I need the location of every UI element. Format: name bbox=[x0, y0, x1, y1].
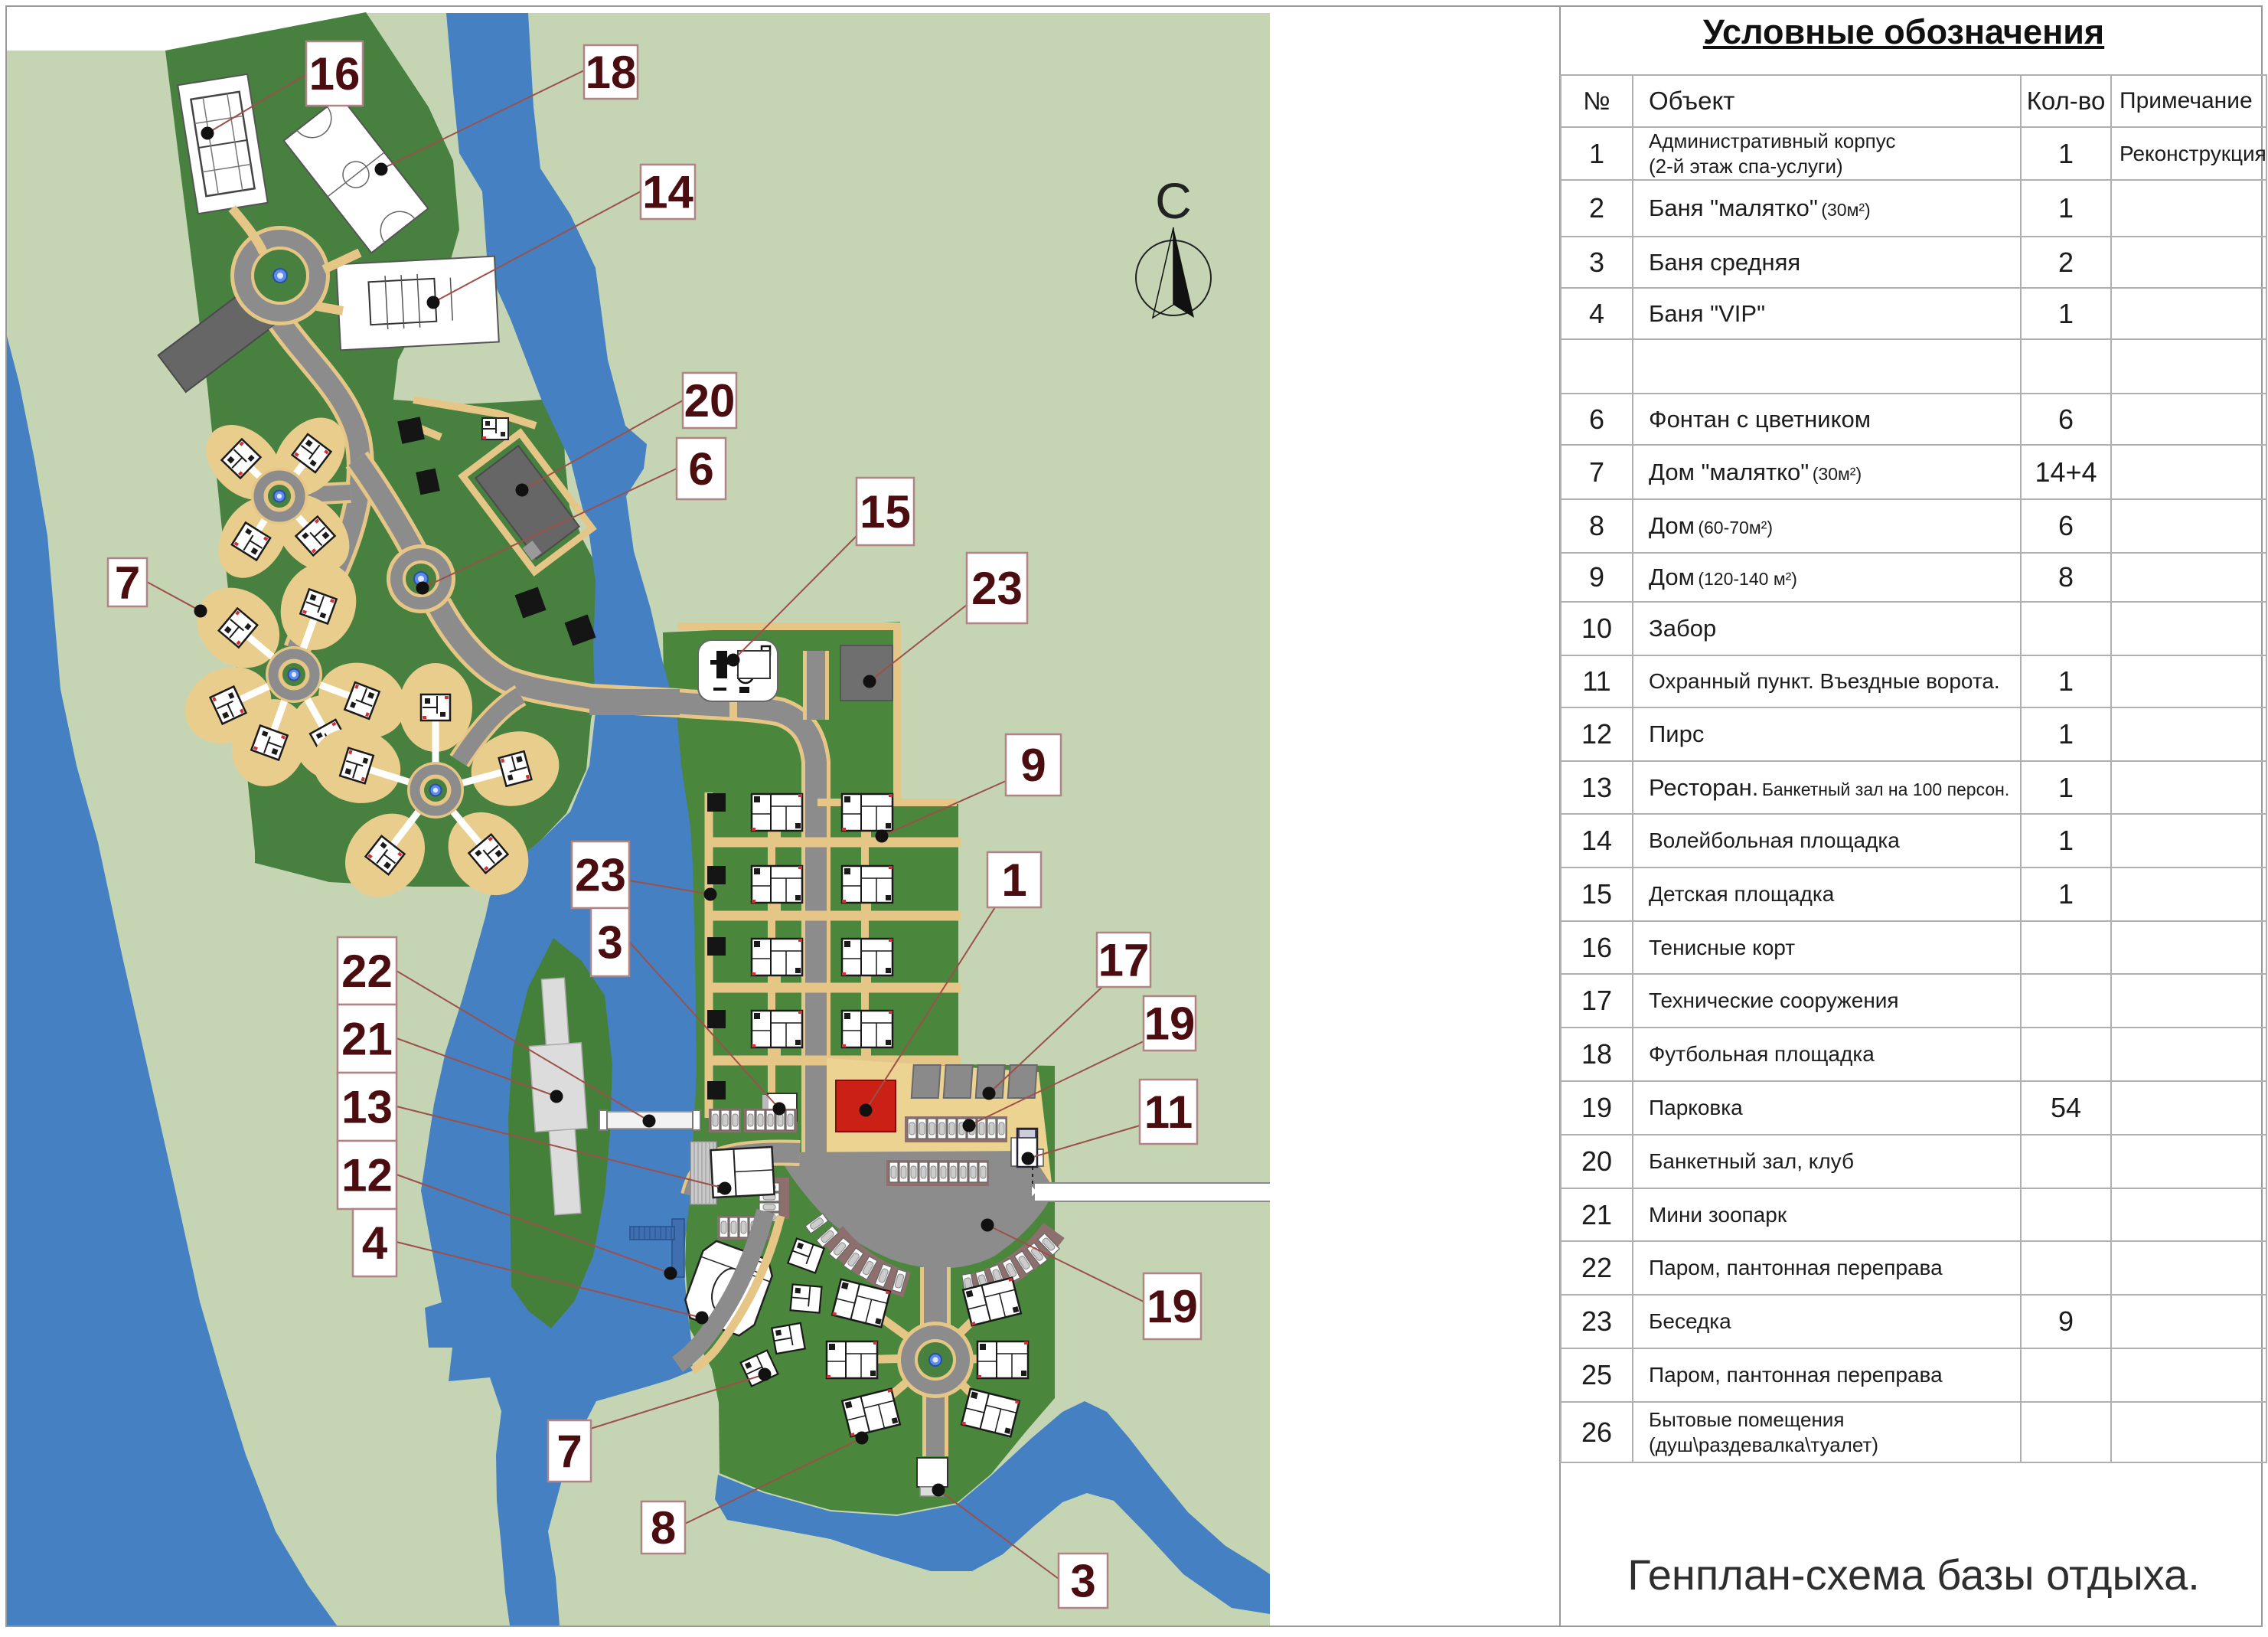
svg-text:3: 3 bbox=[597, 917, 622, 969]
svg-text:22: 22 bbox=[341, 946, 393, 997]
svg-text:C: C bbox=[1155, 172, 1192, 229]
svg-text:20: 20 bbox=[684, 375, 736, 426]
svg-text:4: 4 bbox=[362, 1217, 388, 1269]
svg-text:14: 14 bbox=[642, 167, 693, 218]
svg-text:16: 16 bbox=[309, 48, 361, 100]
svg-text:17: 17 bbox=[1098, 935, 1150, 986]
svg-text:18: 18 bbox=[586, 47, 637, 98]
svg-text:21: 21 bbox=[341, 1014, 393, 1065]
svg-text:12: 12 bbox=[341, 1150, 393, 1201]
svg-text:13: 13 bbox=[341, 1082, 393, 1133]
svg-text:19: 19 bbox=[1147, 1281, 1198, 1332]
svg-text:9: 9 bbox=[1020, 740, 1046, 791]
svg-text:3: 3 bbox=[1070, 1556, 1095, 1607]
svg-text:8: 8 bbox=[651, 1502, 676, 1554]
svg-text:1: 1 bbox=[1001, 854, 1026, 906]
svg-text:23: 23 bbox=[575, 850, 626, 901]
svg-text:11: 11 bbox=[1144, 1086, 1193, 1138]
svg-text:7: 7 bbox=[115, 557, 140, 609]
svg-text:23: 23 bbox=[971, 563, 1023, 614]
svg-text:19: 19 bbox=[1144, 998, 1196, 1050]
svg-text:6: 6 bbox=[688, 443, 713, 495]
svg-text:15: 15 bbox=[860, 486, 911, 537]
svg-text:7: 7 bbox=[556, 1426, 582, 1477]
